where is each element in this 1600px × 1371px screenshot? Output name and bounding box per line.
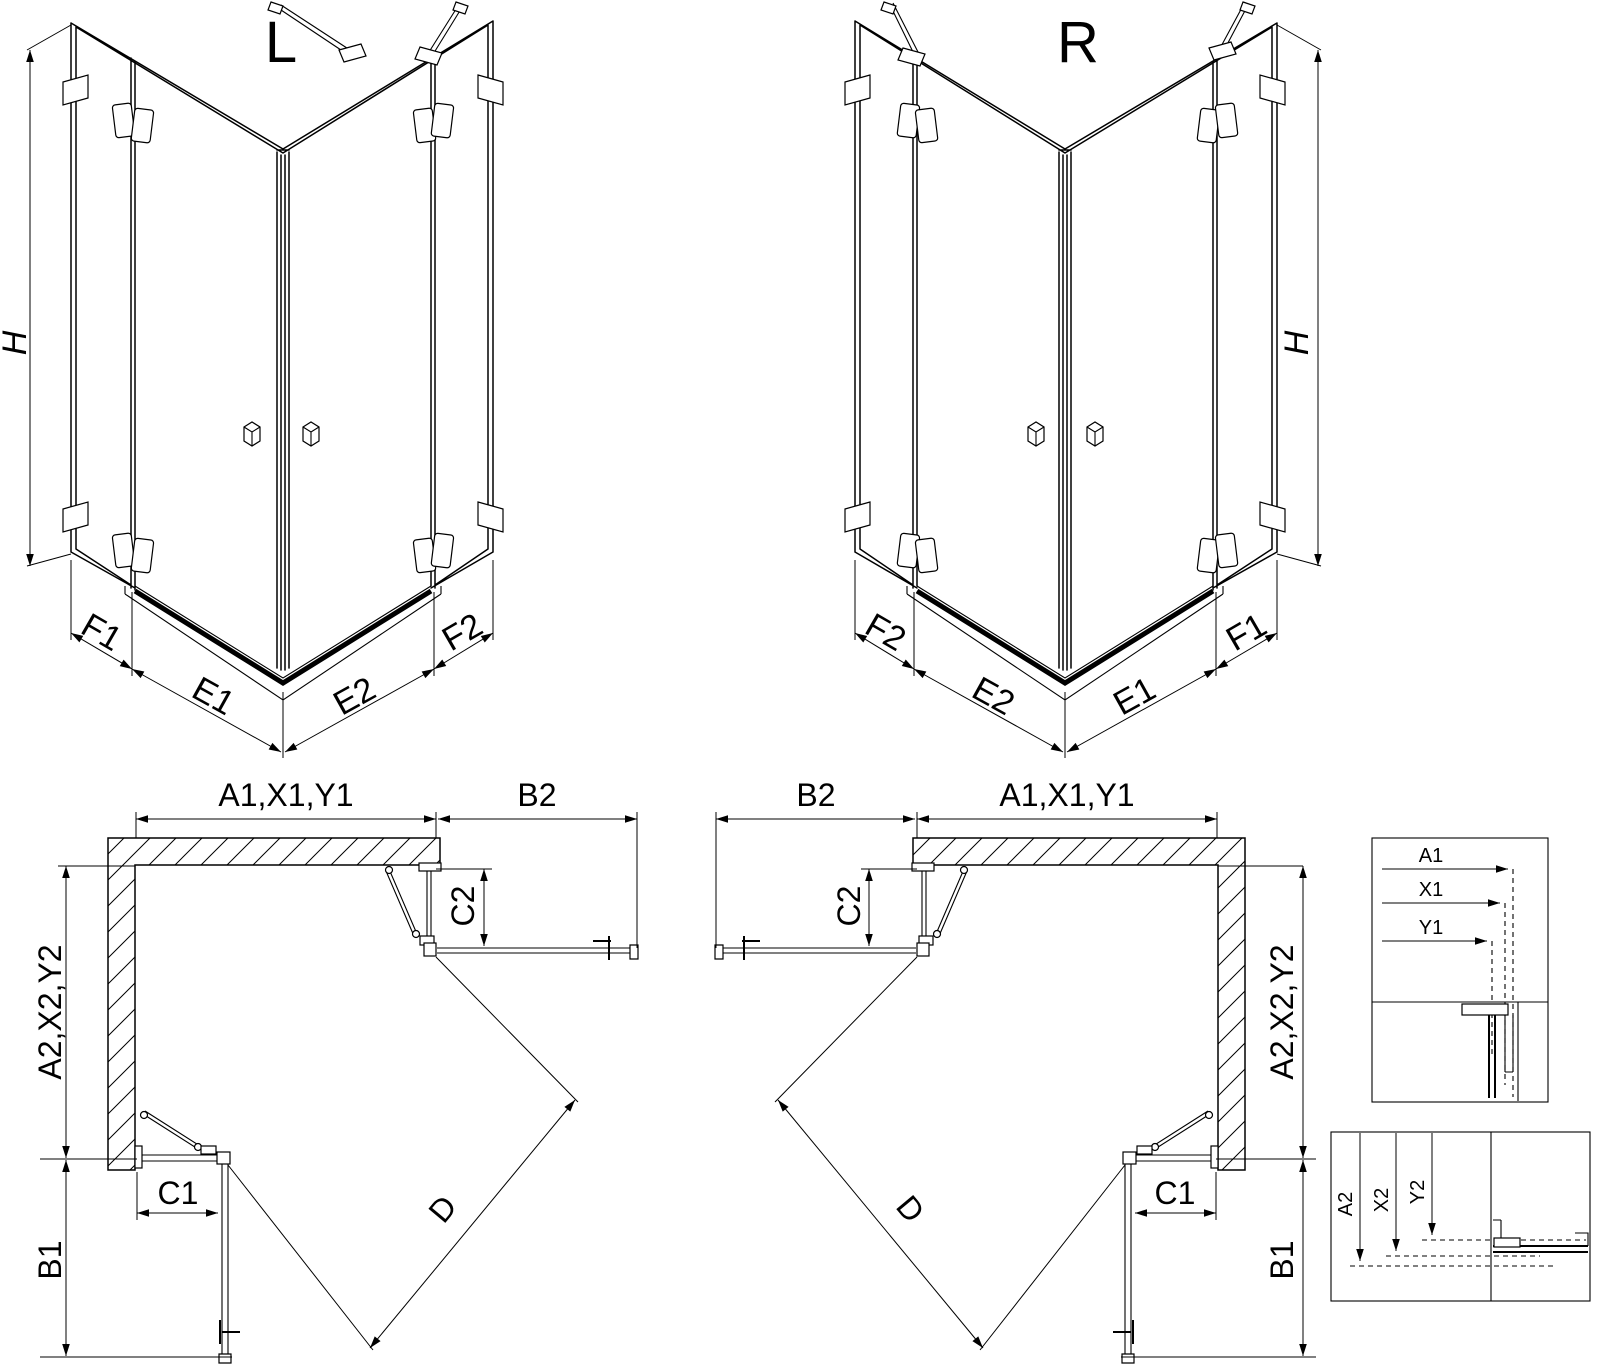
detail-box-bottom: A2 X2 Y2 — [1331, 1132, 1590, 1301]
plan-view-right: A1,X1,Y1 B2 C2 A2,X2,Y2 C1 B1 D — [715, 777, 1316, 1363]
detail-label-a2: A2 — [1335, 1192, 1357, 1216]
dim-label-b1-plan-left: B1 — [32, 1240, 68, 1279]
plan-right-diagonal-dim — [778, 1100, 983, 1348]
plan-right-entry-diagonals — [775, 957, 1125, 1350]
detail-label-x1: X1 — [1419, 879, 1443, 901]
plan-left-right-door-assembly — [386, 863, 639, 960]
iso-left-support-brackets — [268, 2, 468, 65]
detail-box-top: A1 X1 Y1 — [1372, 838, 1548, 1102]
dim-label-c1-plan-left: C1 — [158, 1175, 199, 1211]
plan-right-walls — [913, 838, 1245, 1170]
dim-label-e2-right: E2 — [966, 670, 1021, 723]
dim-label-b2-plan-left: B2 — [517, 777, 556, 813]
detail-label-y1: Y1 — [1419, 917, 1443, 939]
dim-label-c1-plan-right: C1 — [1155, 1175, 1196, 1211]
detail-top-frame — [1372, 838, 1548, 1102]
detail-bottom-profile — [1493, 1220, 1588, 1252]
dim-label-e1-right: E1 — [1107, 670, 1162, 723]
view-title-left: L — [265, 10, 297, 75]
dim-label-f1-right: F1 — [1220, 606, 1273, 659]
shower-enclosure-technical-drawing: L — [0, 0, 1600, 1371]
view-title-right: R — [1057, 10, 1099, 75]
detail-bottom-frame — [1331, 1132, 1590, 1301]
plan-left-entry-diagonals — [228, 957, 578, 1350]
dim-label-a1-plan-left: A1,X1,Y1 — [218, 777, 353, 813]
detail-label-y2: Y2 — [1407, 1180, 1429, 1204]
plan-left-diagonal-dim — [370, 1100, 575, 1348]
plan-view-left: A1,X1,Y1 B2 C2 A2,X2,Y2 C1 B1 D — [32, 777, 638, 1363]
dim-label-b1-plan-right: B1 — [1264, 1240, 1300, 1279]
detail-label-x2: X2 — [1371, 1188, 1393, 1212]
detail-top-profile — [1462, 1002, 1518, 1101]
iso-left-hinges — [112, 103, 454, 573]
dim-label-height-right: H — [1278, 330, 1316, 355]
detail-label-a1: A1 — [1419, 845, 1443, 867]
dim-label-e2-left: E2 — [327, 670, 382, 723]
iso-left-support-bars — [278, 5, 461, 56]
dim-label-a1-plan-right: A1,X1,Y1 — [999, 777, 1134, 813]
iso-view-right: R H F2 — [845, 2, 1321, 758]
dim-label-height-left: H — [0, 330, 34, 355]
dim-label-e1-left: E1 — [186, 670, 241, 723]
dim-label-a2-plan-right: A2,X2,Y2 — [1264, 944, 1300, 1079]
plan-left-walls — [108, 838, 440, 1170]
dim-label-d-plan-left: D — [421, 1189, 463, 1230]
iso-right-door-handles — [1028, 422, 1103, 446]
dim-label-c2-plan-left: C2 — [445, 886, 481, 927]
plan-left-bottom-door-assembly — [135, 1111, 240, 1363]
dim-label-f2-right: F2 — [859, 606, 912, 659]
dim-label-a2-plan-left: A2,X2,Y2 — [32, 944, 68, 1079]
dim-label-b2-plan-right: B2 — [796, 777, 835, 813]
iso-view-left: L — [0, 2, 503, 758]
iso-right-wall-brackets — [845, 75, 1285, 532]
dim-label-d-plan-right: D — [889, 1189, 931, 1230]
dim-label-f1-left: F1 — [75, 606, 128, 659]
plan-right-bottom-door-assembly — [1113, 1111, 1218, 1363]
drawing-svg: L — [0, 0, 1600, 1371]
iso-left-wall-brackets — [63, 75, 503, 532]
dim-label-c2-plan-right: C2 — [831, 886, 867, 927]
iso-right-tray-profile — [917, 591, 1213, 683]
iso-left-tray-profile — [135, 591, 431, 683]
dim-label-f2-left: F2 — [436, 606, 489, 659]
